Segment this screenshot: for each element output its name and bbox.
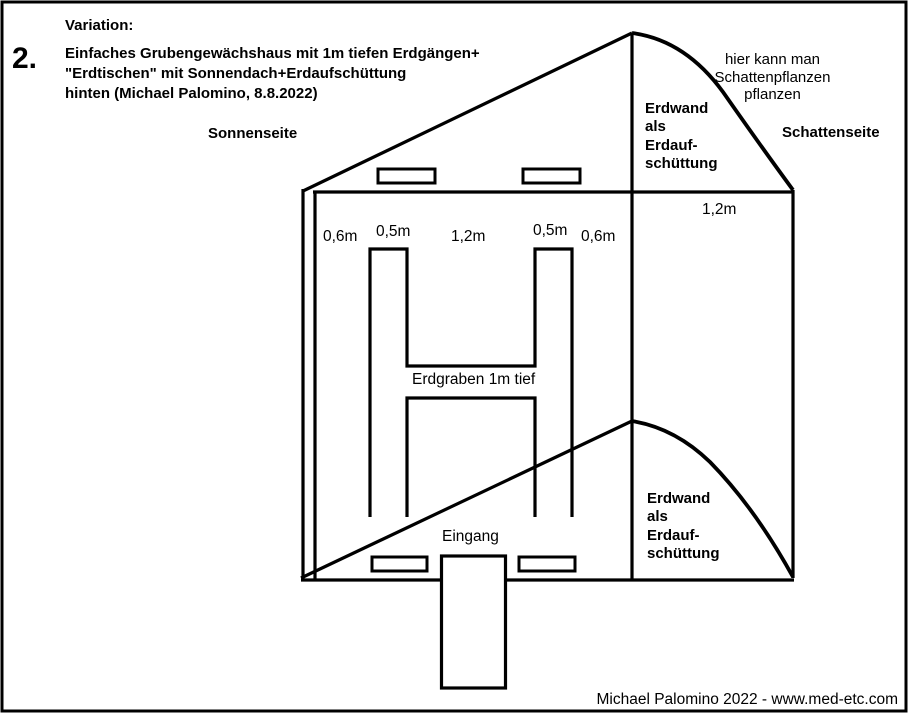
credit-line: Michael Palomino 2022 - www.med-etc.com xyxy=(596,691,898,709)
figure-number: 2. xyxy=(12,42,37,77)
greenhouse-structure xyxy=(2,2,906,711)
roof-vent-left xyxy=(378,169,435,183)
greenhouse-diagram-page: 2. Variation: Einfaches Grubengewächshau… xyxy=(0,0,909,716)
variation-label: Variation: xyxy=(65,17,133,34)
entrance-label: Eingang xyxy=(442,528,499,546)
measure-right-edge: 0,6m xyxy=(581,228,615,246)
greenhouse-line-drawing xyxy=(0,0,909,716)
entrance-box xyxy=(442,556,506,688)
measure-earth-wall-width: 1,2m xyxy=(702,201,736,219)
measure-right-trench: 0,5m xyxy=(533,222,567,240)
measure-left-trench: 0,5m xyxy=(376,223,410,241)
front-vent-left xyxy=(372,557,427,571)
trench-outline-lower xyxy=(407,398,535,517)
trench-label: Erdgraben 1m tief xyxy=(412,371,535,389)
shade-side-label: Schattenseite xyxy=(782,124,880,141)
front-vent-right xyxy=(519,557,575,571)
measure-left-edge: 0,6m xyxy=(323,228,357,246)
figure-title: Einfaches Grubengewächshaus mit 1m tiefe… xyxy=(65,44,480,104)
sun-side-label: Sonnenseite xyxy=(208,125,297,142)
earth-wall-label-bottom: Erdwand als Erdauf- schüttung xyxy=(647,490,720,564)
measure-center: 1,2m xyxy=(451,228,485,246)
shade-plants-note: hier kann man Schattenpflanzen pflanzen xyxy=(700,51,845,104)
roof-vent-right xyxy=(523,169,580,183)
earth-wall-label-top: Erdwand als Erdauf- schüttung xyxy=(645,100,718,174)
